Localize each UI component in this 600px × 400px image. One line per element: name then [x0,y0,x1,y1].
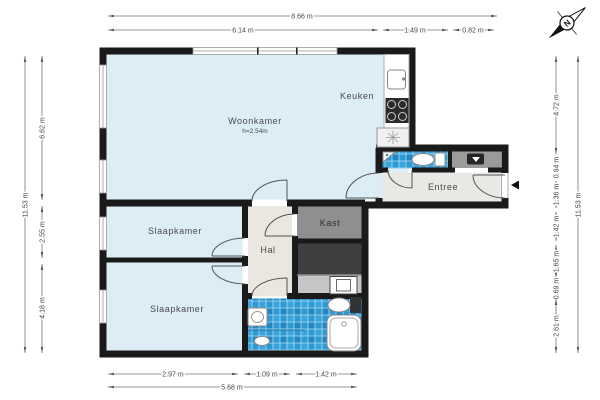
dim-left-3: 4.18 m [40,297,47,319]
dim-top-outer: 8.66 m [291,14,313,21]
dim-right-7: 2.61 m [554,315,561,337]
shower-drain [255,337,270,346]
compass: N [539,0,595,50]
window-left-1 [100,65,107,128]
dim-top-2: 1.49 m [404,28,426,35]
boiler-unit [377,128,409,147]
floor-plan-image: Woonkamer h=2.54m Keuken Entree Slaapkam… [0,0,600,400]
bathtub [327,315,361,351]
dim-left-outer: 11.53 m [23,192,30,217]
bathroom-sink [248,308,267,326]
dim-bottom-3: 1.42 m [315,372,337,379]
woonkamer-label: Woonkamer [228,116,282,126]
dimensions-right: 4.72 m 0.94 m 1.36 m 1.42 m 1.65 m 0.69 … [554,56,583,353]
kast-label: Kast [320,218,340,228]
dim-right-5: 1.65 m [554,251,561,273]
dim-right-6: 0.69 m [554,278,561,300]
dim-right-4: 1.42 m [554,216,561,238]
dimensions-bottom: 2.97 m 1.09 m 1.42 m 5.68 m [108,372,357,392]
dimensions-top: 8.66 m 6.14 m 1.49 m 0.82 m [108,14,497,35]
window-left-3 [100,217,107,250]
dim-right-1: 4.72 m [554,94,561,116]
dimensions-left: 11.53 m 6.62 m 2.55 m 4.18 m [23,56,47,353]
floor-plan-page: Woonkamer h=2.54m Keuken Entree Slaapkam… [0,0,600,400]
window-left-4 [100,290,107,323]
washing-machine [330,277,357,295]
meter-cupboard-icon [467,154,484,165]
dim-left-1: 6.62 m [40,117,47,139]
dark-closet-floor [297,244,362,276]
window-top [193,48,337,55]
corner-sink-tap [386,154,388,156]
slaapkamer-2-label: Slaapkamer [150,304,204,314]
dim-left-2: 2.55 m [40,221,47,243]
stove [386,98,409,123]
hal-label: Hal [260,245,275,255]
slaapkamer-1-label: Slaapkamer [148,226,202,236]
toilet-cistern [435,153,445,166]
dim-right-3: 1.36 m [554,184,561,206]
entrance-arrow [511,181,519,190]
kitchen-faucet [402,77,405,80]
keuken-label: Keuken [340,91,374,101]
toilet2-cistern [350,297,361,313]
dim-top-1: 6.14 m [232,28,254,35]
toilet2-bowl [328,298,350,312]
toilet-bowl [412,154,434,166]
window-left-2 [100,160,107,193]
dim-bottom-1: 2.97 m [162,372,184,379]
woonkamer-height-label: h=2.54m [242,128,267,135]
dim-bottom-2: 1.09 m [256,372,278,379]
woonkamer-floor [107,55,409,200]
dim-top-3: 0.82 m [462,28,484,35]
dim-right-2: 0.94 m [554,157,561,179]
dim-right-outer: 11.53 m [576,192,583,217]
dim-bottom-outer: 5.68 m [221,385,243,392]
entree-label: Entree [428,182,458,192]
